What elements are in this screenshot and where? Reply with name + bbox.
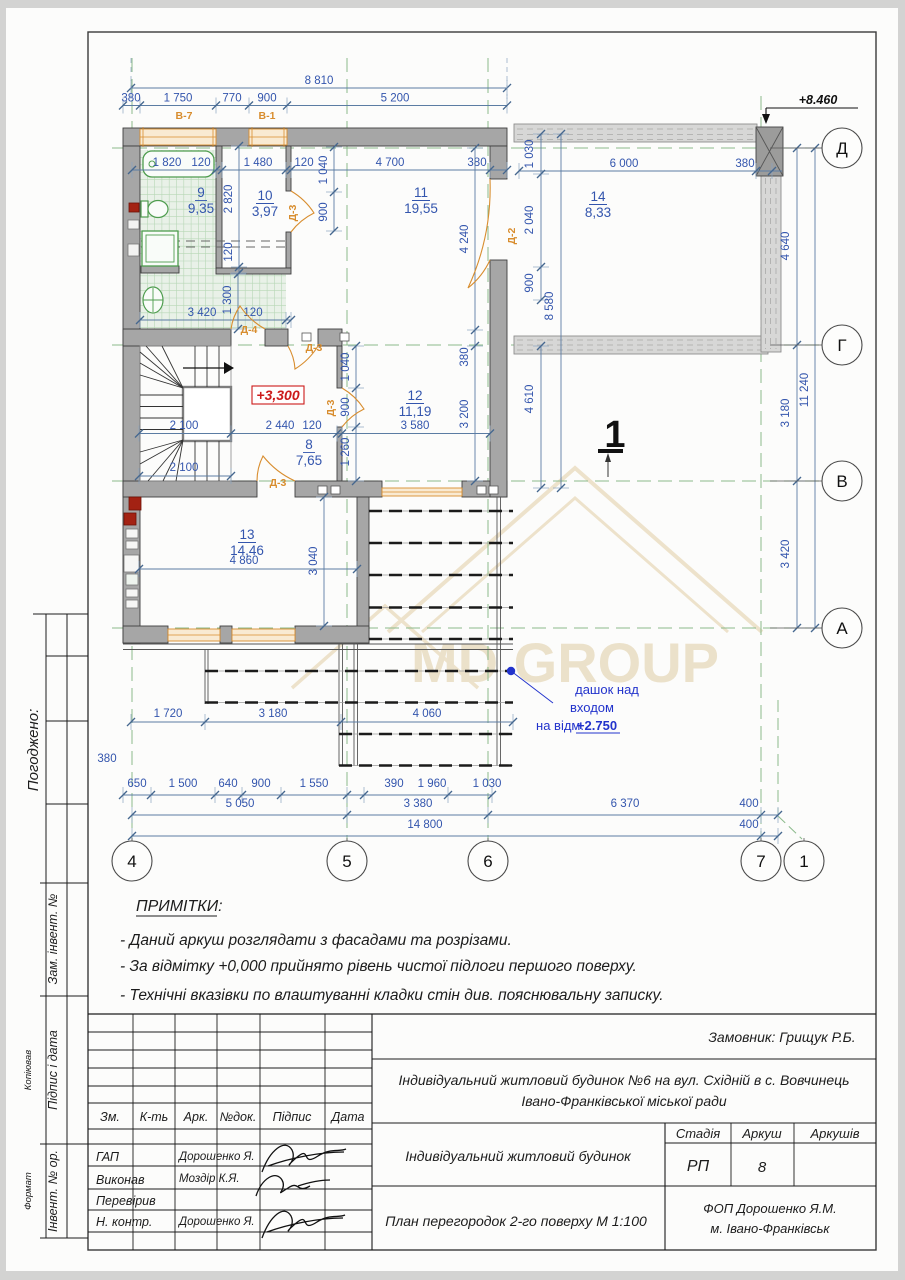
svg-text:640: 640 bbox=[218, 778, 237, 790]
svg-text:ФОП Дорошенко Я.М.: ФОП Дорошенко Я.М. bbox=[703, 1201, 836, 1216]
svg-text:2 440: 2 440 bbox=[266, 420, 295, 432]
svg-text:А: А bbox=[836, 619, 848, 638]
svg-text:Перевірив: Перевірив bbox=[96, 1194, 156, 1208]
svg-text:4 060: 4 060 bbox=[413, 708, 442, 720]
svg-text:19,55: 19,55 bbox=[404, 201, 438, 216]
svg-text:380: 380 bbox=[459, 347, 471, 366]
svg-text:К-ть: К-ть bbox=[140, 1110, 169, 1124]
svg-text:900: 900 bbox=[251, 778, 270, 790]
svg-text:- Даний аркуш розглядати з фас: - Даний аркуш розглядати з фасадами та р… bbox=[120, 932, 512, 949]
svg-text:- Технічні вказівки по влаштув: - Технічні вказівки по влаштуванні кладк… bbox=[120, 987, 664, 1004]
svg-text:Д-3: Д-3 bbox=[287, 204, 299, 221]
svg-text:РП: РП bbox=[687, 1158, 710, 1175]
svg-text:120: 120 bbox=[294, 157, 313, 169]
svg-text:Індивідуальний житловий будино: Індивідуальний житловий будинок bbox=[405, 1148, 632, 1164]
svg-text:1 030: 1 030 bbox=[524, 140, 536, 169]
svg-text:9,35: 9,35 bbox=[188, 201, 214, 216]
svg-text:В: В bbox=[836, 472, 847, 491]
svg-text:м. Івано-Франківськ: м. Івано-Франківськ bbox=[710, 1221, 830, 1236]
svg-text:3 040: 3 040 bbox=[308, 547, 320, 576]
svg-text:650: 650 bbox=[127, 778, 146, 790]
svg-text:+3,300: +3,300 bbox=[256, 387, 299, 403]
svg-text:ПРИМІТКИ:: ПРИМІТКИ: bbox=[136, 898, 223, 915]
svg-text:8: 8 bbox=[305, 437, 313, 452]
svg-text:3 200: 3 200 bbox=[459, 400, 471, 429]
svg-text:Д-3: Д-3 bbox=[270, 477, 287, 489]
svg-text:Д-3: Д-3 bbox=[325, 399, 337, 416]
svg-text:- За відмітку +0,000 прийнято: - За відмітку +0,000 прийнято рівень чис… bbox=[120, 958, 637, 975]
svg-text:Д-3: Д-3 bbox=[306, 342, 323, 354]
svg-text:План перегородок 2-го поверху: План перегородок 2-го поверху М 1:100 bbox=[385, 1213, 647, 1229]
svg-text:380: 380 bbox=[97, 753, 116, 765]
svg-text:Зм.: Зм. bbox=[100, 1110, 120, 1124]
svg-text:Моздір К.Я.: Моздір К.Я. bbox=[179, 1173, 240, 1185]
svg-text:Виконав: Виконав bbox=[96, 1173, 145, 1187]
svg-text:8 810: 8 810 bbox=[305, 75, 334, 87]
svg-text:1 040: 1 040 bbox=[340, 353, 352, 382]
svg-text:770: 770 bbox=[222, 93, 241, 105]
svg-text:В-7: В-7 bbox=[176, 110, 193, 122]
svg-text:Н. контр.: Н. контр. bbox=[96, 1215, 152, 1229]
svg-text:13: 13 bbox=[239, 527, 254, 542]
svg-text:6 370: 6 370 bbox=[611, 798, 640, 810]
svg-text:1 480: 1 480 bbox=[244, 157, 273, 169]
svg-text:5 050: 5 050 bbox=[226, 798, 255, 810]
svg-text:3 180: 3 180 bbox=[780, 399, 792, 428]
svg-text:1 030: 1 030 bbox=[473, 778, 502, 790]
svg-text:Підпис і дата: Підпис і дата bbox=[46, 1030, 60, 1110]
svg-text:120: 120 bbox=[223, 242, 235, 261]
svg-text:11: 11 bbox=[414, 185, 428, 200]
svg-text:120: 120 bbox=[191, 157, 210, 169]
svg-text:2 100: 2 100 bbox=[170, 420, 199, 432]
svg-text:14 800: 14 800 bbox=[407, 819, 442, 831]
svg-text:Погоджено:: Погоджено: bbox=[25, 709, 42, 792]
svg-text:Аркушів: Аркушів bbox=[809, 1126, 859, 1141]
svg-text:3 380: 3 380 bbox=[404, 798, 433, 810]
svg-text:400: 400 bbox=[739, 798, 758, 810]
svg-text:Стадія: Стадія bbox=[676, 1126, 720, 1141]
svg-text:Формат: Формат bbox=[23, 1172, 34, 1210]
svg-text:7: 7 bbox=[756, 852, 765, 871]
svg-text:900: 900 bbox=[340, 397, 352, 416]
svg-text:8: 8 bbox=[758, 1159, 767, 1176]
svg-text:Д: Д bbox=[836, 139, 848, 158]
svg-text:Д-2: Д-2 bbox=[506, 227, 518, 244]
svg-text:1 040: 1 040 bbox=[318, 156, 330, 185]
svg-text:№док.: №док. bbox=[220, 1110, 257, 1124]
svg-text:+8.460: +8.460 bbox=[799, 93, 838, 107]
svg-text:3 180: 3 180 bbox=[259, 708, 288, 720]
svg-text:12: 12 bbox=[407, 388, 422, 403]
svg-text:4 640: 4 640 bbox=[780, 232, 792, 261]
svg-text:1 720: 1 720 bbox=[154, 708, 183, 720]
svg-text:4: 4 bbox=[127, 852, 136, 871]
svg-text:120: 120 bbox=[243, 307, 262, 319]
svg-text:1 820: 1 820 bbox=[153, 157, 182, 169]
svg-text:6: 6 bbox=[483, 852, 492, 871]
svg-text:1: 1 bbox=[799, 852, 808, 871]
svg-text:7,65: 7,65 bbox=[296, 453, 322, 468]
svg-text:1 750: 1 750 bbox=[164, 93, 193, 105]
svg-text:Аркуш: Аркуш bbox=[741, 1126, 782, 1141]
svg-text:14,46: 14,46 bbox=[230, 543, 264, 558]
svg-text:390: 390 bbox=[384, 778, 403, 790]
svg-text:900: 900 bbox=[257, 93, 276, 105]
svg-text:3 580: 3 580 bbox=[401, 420, 430, 432]
svg-text:Г: Г bbox=[837, 336, 846, 355]
svg-text:4 610: 4 610 bbox=[524, 385, 536, 414]
svg-text:14: 14 bbox=[590, 189, 606, 204]
svg-text:2 040: 2 040 bbox=[524, 206, 536, 235]
svg-text:Підпис: Підпис bbox=[273, 1110, 313, 1124]
svg-text:8 580: 8 580 bbox=[544, 292, 556, 321]
svg-text:380: 380 bbox=[467, 157, 486, 169]
svg-text:Івано-Франківської міської рад: Івано-Франківської міської ради bbox=[521, 1093, 726, 1109]
svg-text:6 000: 6 000 bbox=[610, 158, 639, 170]
svg-text:Д-4: Д-4 bbox=[241, 324, 258, 336]
svg-text:4 240: 4 240 bbox=[459, 225, 471, 254]
svg-text:Інвент. № ор.: Інвент. № ор. bbox=[46, 1150, 60, 1232]
svg-text:Зам. інвент. №: Зам. інвент. № bbox=[46, 893, 60, 984]
svg-text:380: 380 bbox=[121, 93, 140, 105]
svg-text:380: 380 bbox=[735, 158, 754, 170]
svg-text:Замовник: Грищук Р.Б.: Замовник: Грищук Р.Б. bbox=[708, 1029, 855, 1045]
svg-text:9: 9 bbox=[197, 185, 205, 200]
svg-text:1 550: 1 550 bbox=[300, 778, 329, 790]
svg-text:Індивідуальний житловий будино: Індивідуальний житловий будинок №6 на ву… bbox=[398, 1072, 849, 1088]
svg-text:5: 5 bbox=[342, 852, 351, 871]
svg-text:1 960: 1 960 bbox=[418, 778, 447, 790]
svg-text:2 820: 2 820 bbox=[223, 185, 235, 214]
svg-text:10: 10 bbox=[257, 188, 272, 203]
svg-text:11,19: 11,19 bbox=[399, 404, 432, 419]
svg-text:8,33: 8,33 bbox=[585, 205, 611, 220]
svg-text:Копіював: Копіював bbox=[23, 1050, 34, 1090]
svg-text:900: 900 bbox=[524, 273, 536, 292]
svg-text:4 700: 4 700 bbox=[376, 157, 405, 169]
svg-text:+2.750: +2.750 bbox=[577, 718, 617, 733]
svg-text:Дата: Дата bbox=[330, 1110, 365, 1124]
svg-text:900: 900 bbox=[318, 202, 330, 221]
svg-text:дашок над: дашок над bbox=[575, 682, 639, 697]
svg-text:1 500: 1 500 bbox=[169, 778, 198, 790]
svg-text:400: 400 bbox=[739, 819, 758, 831]
svg-text:1 300: 1 300 bbox=[222, 286, 234, 315]
svg-text:1 260: 1 260 bbox=[340, 438, 352, 467]
svg-text:2 100: 2 100 bbox=[170, 462, 199, 474]
svg-text:11 240: 11 240 bbox=[799, 373, 811, 407]
svg-text:В-1: В-1 bbox=[259, 110, 276, 122]
svg-text:Арк.: Арк. bbox=[183, 1110, 209, 1124]
svg-text:3,97: 3,97 bbox=[252, 204, 278, 219]
svg-text:Дорошенко Я.: Дорошенко Я. bbox=[177, 1151, 255, 1163]
svg-text:3 420: 3 420 bbox=[780, 540, 792, 569]
svg-text:5 200: 5 200 bbox=[381, 93, 410, 105]
svg-text:120: 120 bbox=[302, 420, 321, 432]
svg-text:MD GROUP: MD GROUP bbox=[411, 631, 719, 694]
svg-text:ГАП: ГАП bbox=[96, 1150, 120, 1164]
svg-text:входом: входом bbox=[570, 700, 614, 715]
svg-text:3 420: 3 420 bbox=[188, 307, 217, 319]
svg-text:Дорошенко Я.: Дорошенко Я. bbox=[177, 1216, 255, 1228]
